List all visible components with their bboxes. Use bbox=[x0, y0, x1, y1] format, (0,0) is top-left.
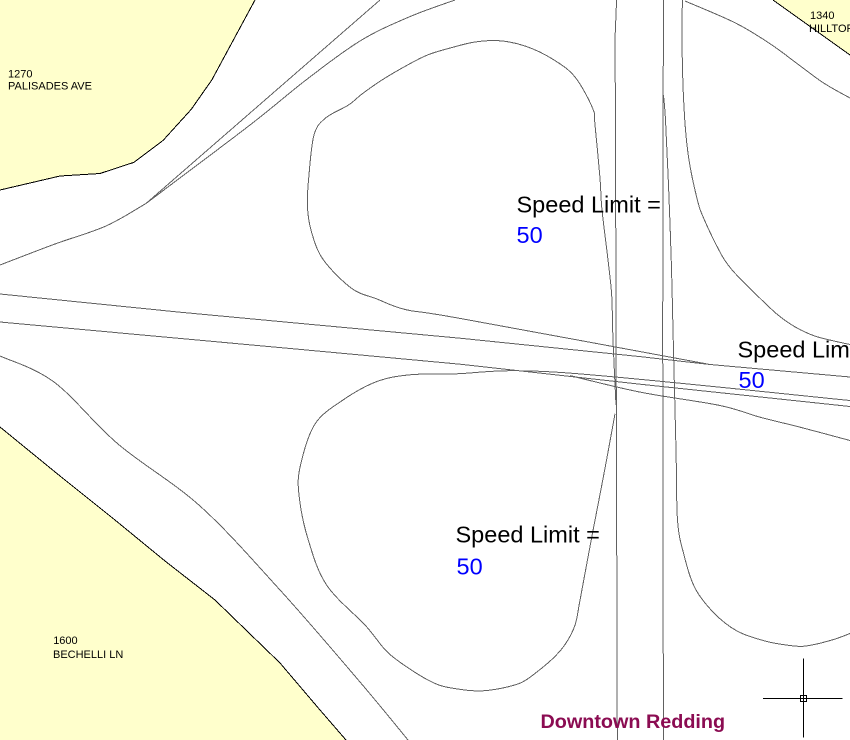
svg-text:Downtown Redding: Downtown Redding bbox=[541, 711, 726, 733]
svg-text:Speed Limit =: Speed Limit = bbox=[738, 336, 850, 362]
svg-text:1270: 1270 bbox=[8, 69, 32, 81]
svg-text:Speed Limit =: Speed Limit = bbox=[517, 192, 661, 218]
svg-text:Speed Limit =: Speed Limit = bbox=[456, 522, 600, 548]
svg-text:1600: 1600 bbox=[53, 635, 77, 647]
svg-text:1340: 1340 bbox=[810, 10, 834, 22]
svg-text:50: 50 bbox=[517, 222, 543, 248]
svg-text:50: 50 bbox=[739, 367, 765, 393]
svg-text:PALISADES AVE: PALISADES AVE bbox=[8, 81, 92, 93]
svg-text:BECHELLI LN: BECHELLI LN bbox=[53, 649, 123, 661]
svg-text:50: 50 bbox=[457, 554, 483, 580]
svg-text:HILLTOP DR: HILLTOP DR bbox=[809, 23, 850, 35]
